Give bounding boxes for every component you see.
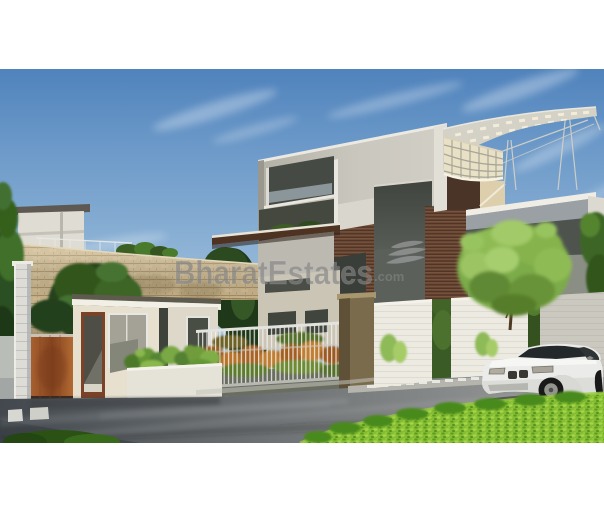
svg-text:.com: .com [374, 269, 404, 284]
svg-text:BharatEstates: BharatEstates [174, 254, 373, 291]
